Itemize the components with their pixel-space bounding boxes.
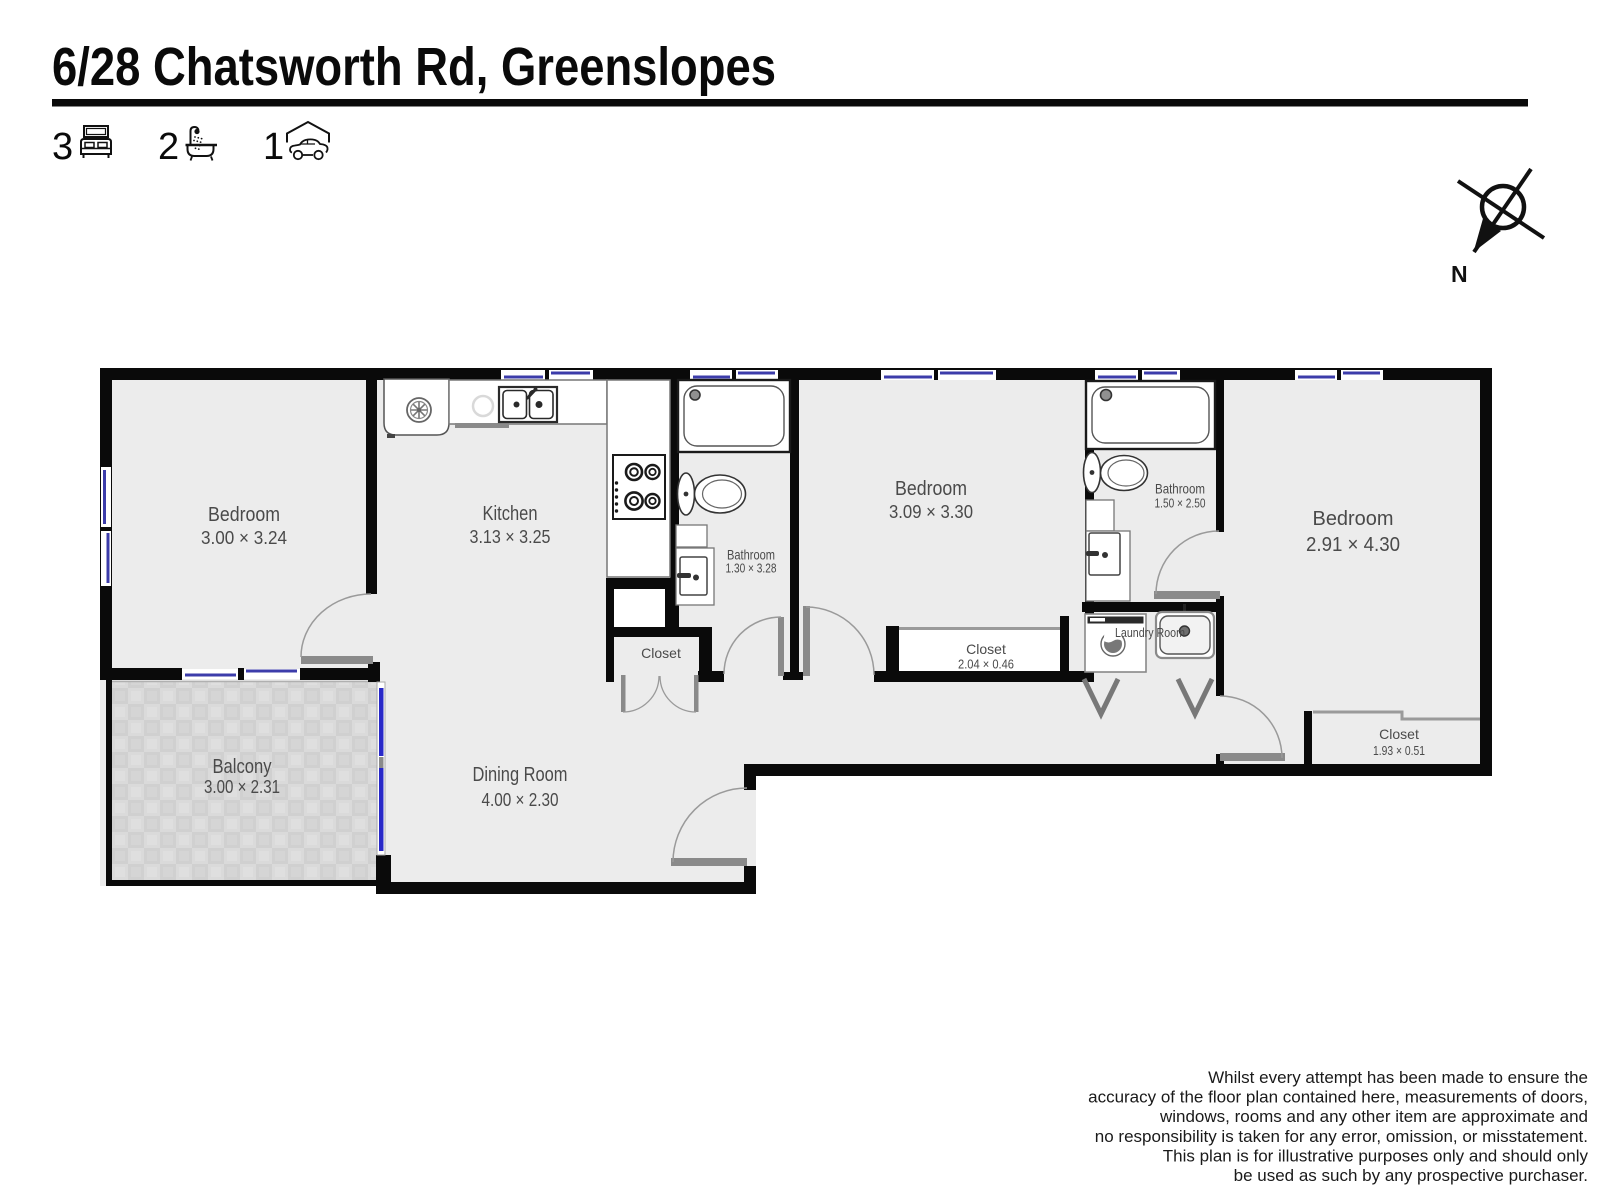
svg-text:3.09 × 3.30: 3.09 × 3.30 [889,502,973,522]
svg-text:accuracy of the floor plan con: accuracy of the floor plan contained her… [1088,1088,1588,1107]
svg-text:Balcony: Balcony [213,756,272,778]
svg-text:3.13 × 3.25: 3.13 × 3.25 [470,527,551,547]
svg-text:Closet: Closet [966,641,1006,657]
svg-text:1.93 × 0.51: 1.93 × 0.51 [1373,744,1425,758]
svg-text:1.50 × 2.50: 1.50 × 2.50 [1155,497,1206,511]
svg-text:Whilst every attempt has been: Whilst every attempt has been made to en… [1208,1068,1588,1087]
svg-text:1.30 × 3.28: 1.30 × 3.28 [726,562,777,576]
svg-text:Closet: Closet [1379,726,1419,742]
svg-text:4.00 × 2.30: 4.00 × 2.30 [482,790,559,810]
svg-text:Bedroom: Bedroom [208,504,280,526]
svg-text:2.04 × 0.46: 2.04 × 0.46 [958,658,1014,672]
svg-text:6/28 Chatsworth Rd, Greenslope: 6/28 Chatsworth Rd, Greenslopes [52,37,776,97]
svg-text:Dining Room: Dining Room [473,764,568,786]
svg-text:2: 2 [158,126,179,168]
svg-text:Kitchen: Kitchen [483,503,538,525]
svg-text:no responsibility is taken for: no responsibility is taken for any error… [1095,1127,1588,1146]
svg-text:This plan is for illustrative: This plan is for illustrative purposes o… [1163,1146,1589,1165]
svg-text:N: N [1451,261,1468,287]
svg-text:2.91 × 4.30: 2.91 × 4.30 [1306,534,1400,556]
svg-text:3.00 × 3.24: 3.00 × 3.24 [201,528,287,548]
svg-text:3: 3 [52,126,73,168]
svg-text:be used as such by any prospec: be used as such by any prospective purch… [1234,1166,1588,1185]
svg-text:1: 1 [263,126,284,168]
svg-text:Laundry Room: Laundry Room [1115,625,1185,640]
svg-text:3.00 × 2.31: 3.00 × 2.31 [204,777,280,797]
svg-text:Bedroom: Bedroom [895,478,967,500]
svg-text:Bathroom: Bathroom [1155,481,1205,497]
svg-text:Closet: Closet [641,645,681,661]
svg-text:windows, rooms and any other i: windows, rooms and any other item are ap… [1159,1107,1588,1126]
svg-text:Bedroom: Bedroom [1313,507,1394,530]
svg-text:Bathroom: Bathroom [727,547,775,563]
